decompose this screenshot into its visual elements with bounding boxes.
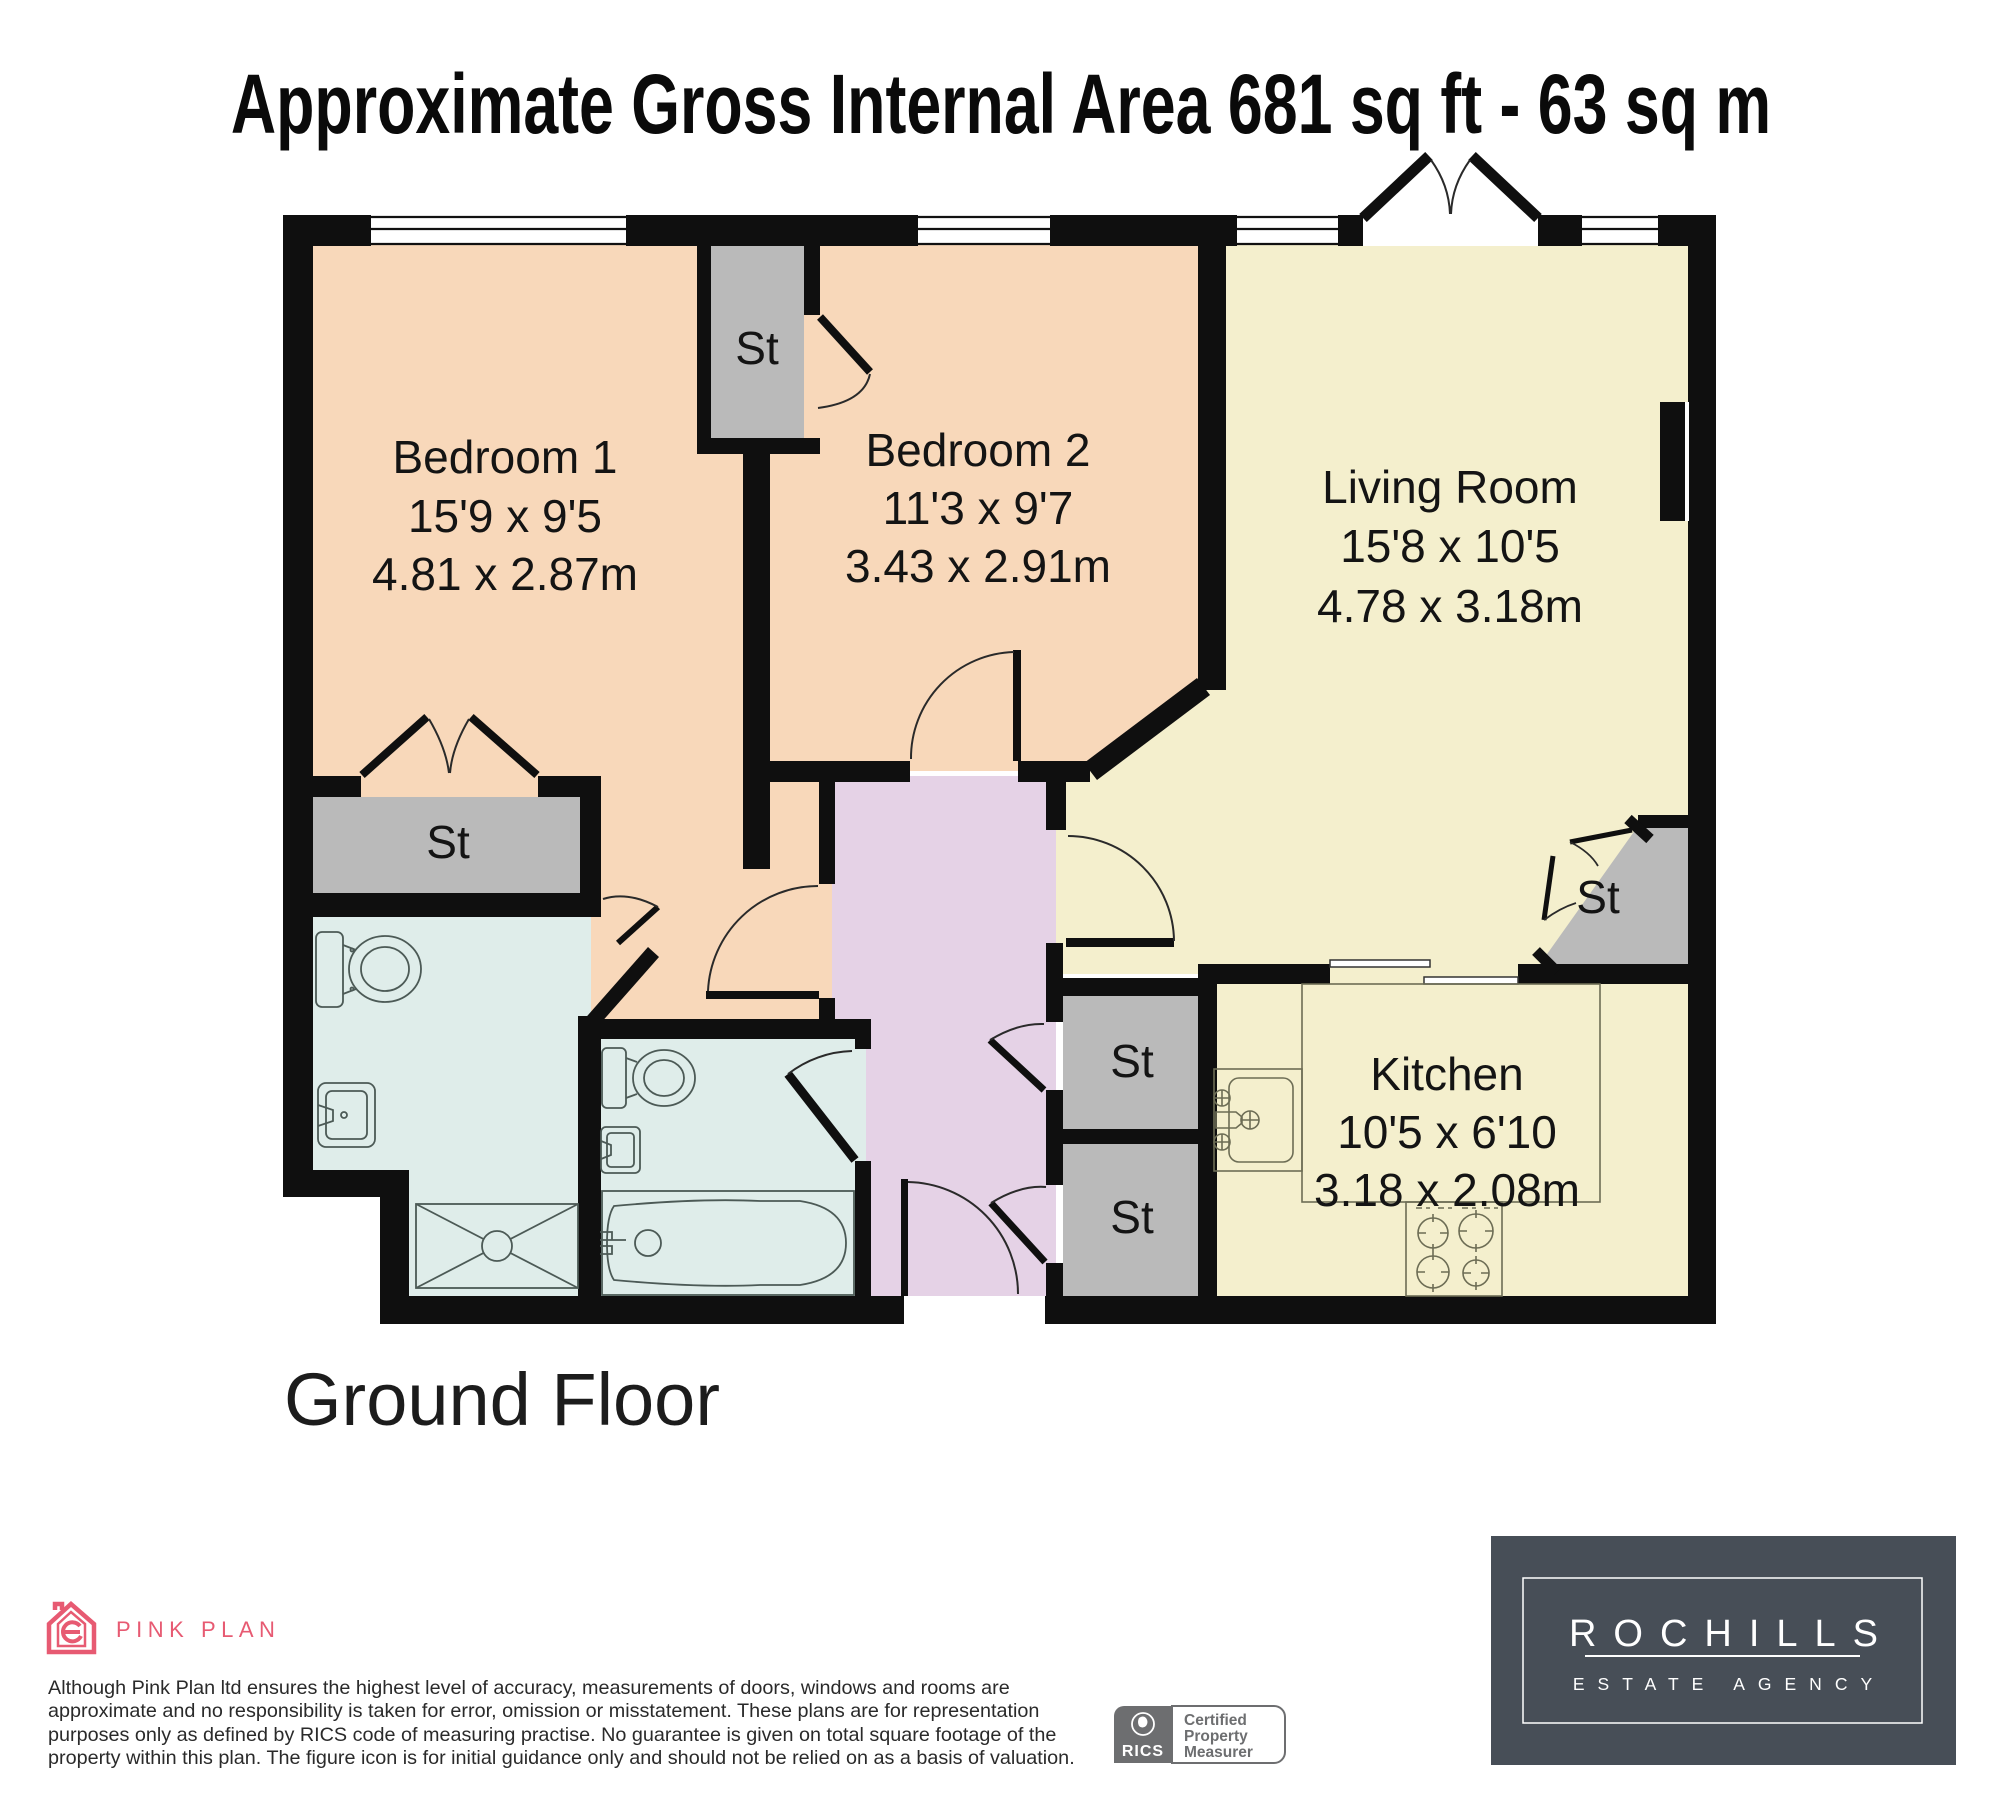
svg-text:Ground Floor: Ground Floor (284, 1358, 720, 1441)
svg-text:property within this plan. The: property within this plan. The figure ic… (48, 1747, 1075, 1769)
svg-text:15'8 x 10'5: 15'8 x 10'5 (1340, 520, 1560, 572)
svg-text:St: St (1110, 1191, 1154, 1243)
svg-text:Property: Property (1184, 1728, 1248, 1745)
svg-text:St: St (1576, 871, 1620, 923)
svg-text:Living Room: Living Room (1322, 461, 1578, 513)
svg-text:Although Pink Plan ltd ensures: Although Pink Plan ltd ensures the highe… (48, 1677, 1010, 1699)
svg-text:4.78 x 3.18m: 4.78 x 3.18m (1317, 580, 1583, 632)
svg-text:ESTATE AGENCY: ESTATE AGENCY (1573, 1674, 1885, 1694)
svg-text:Approximate Gross Internal Are: Approximate Gross Internal Area 681 sq f… (231, 57, 1771, 151)
svg-text:St: St (426, 816, 470, 868)
svg-text:approximate and no responsibil: approximate and no responsibility is tak… (48, 1700, 1039, 1722)
svg-text:Bedroom 2: Bedroom 2 (865, 424, 1090, 476)
svg-text:3.18 x 2.08m: 3.18 x 2.08m (1314, 1164, 1580, 1216)
svg-text:St: St (1110, 1035, 1154, 1087)
svg-text:10'5 x 6'10: 10'5 x 6'10 (1337, 1106, 1557, 1158)
svg-text:Bedroom 1: Bedroom 1 (392, 431, 617, 483)
svg-text:St: St (735, 322, 779, 374)
svg-text:Measurer: Measurer (1184, 1744, 1253, 1761)
svg-text:Certified: Certified (1184, 1712, 1247, 1729)
svg-text:3.43 x 2.91m: 3.43 x 2.91m (845, 540, 1111, 592)
svg-text:RICS: RICS (1122, 1743, 1164, 1760)
svg-text:PINK PLAN: PINK PLAN (116, 1617, 280, 1642)
svg-text:11'3 x 9'7: 11'3 x 9'7 (883, 482, 1074, 534)
svg-text:Kitchen: Kitchen (1370, 1048, 1523, 1100)
svg-text:purposes only as defined by RI: purposes only as defined by RICS code of… (48, 1724, 1056, 1746)
svg-text:ROCHILLS: ROCHILLS (1569, 1613, 1895, 1655)
svg-text:15'9 x 9'5: 15'9 x 9'5 (408, 490, 602, 542)
svg-text:4.81 x 2.87m: 4.81 x 2.87m (372, 548, 638, 600)
